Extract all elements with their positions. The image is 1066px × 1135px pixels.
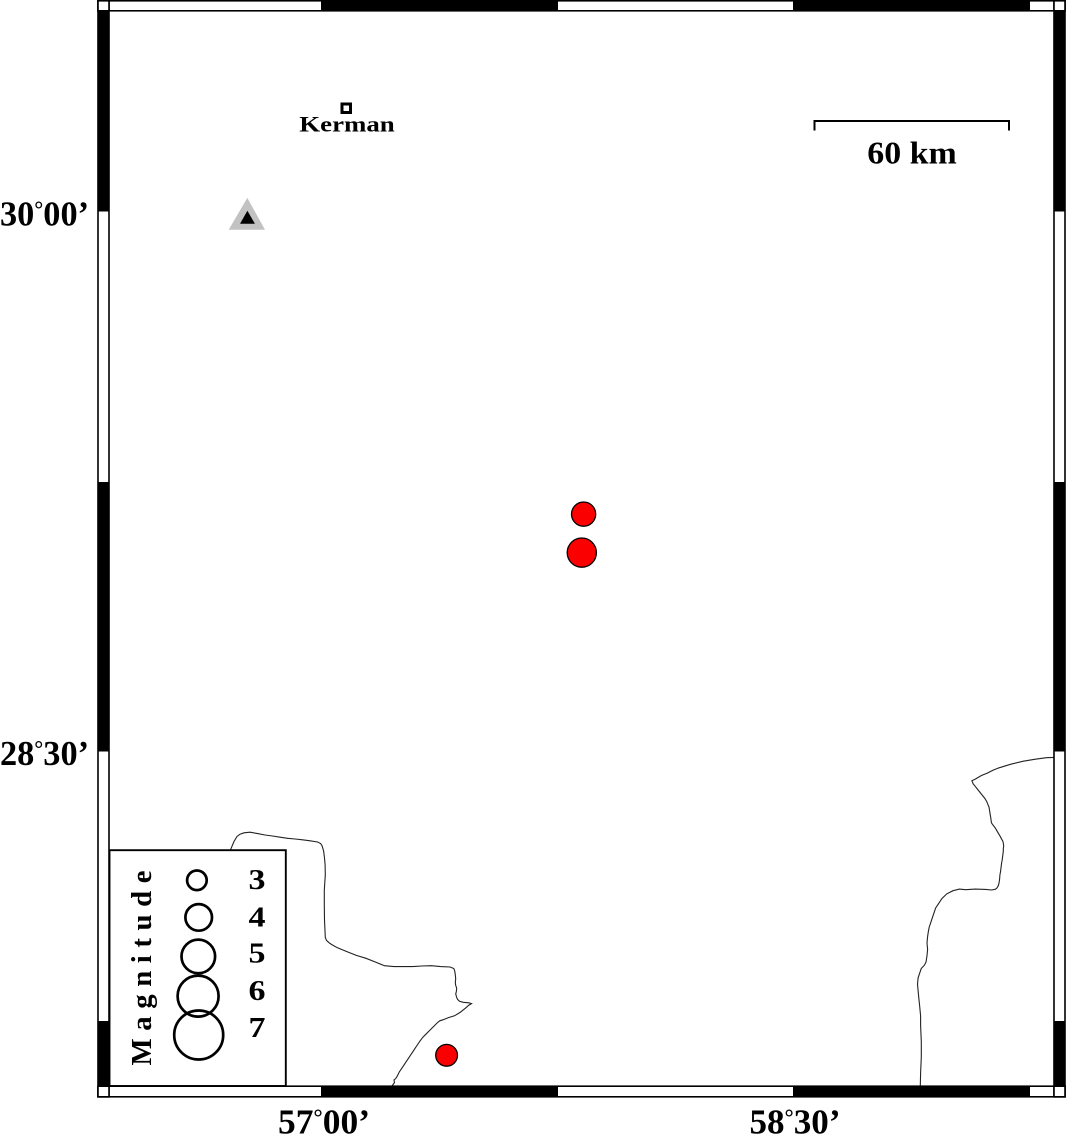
svg-text:57°00’: 57°00’: [278, 1103, 370, 1135]
svg-text:7: 7: [249, 1012, 266, 1044]
svg-text:Kerman: Kerman: [299, 112, 395, 137]
svg-text:5: 5: [249, 938, 266, 970]
svg-text:4: 4: [249, 902, 266, 934]
svg-text:60 km: 60 km: [867, 135, 957, 171]
svg-text:28°30’: 28°30’: [0, 734, 89, 773]
svg-text:6: 6: [249, 975, 266, 1007]
svg-text:30°00’: 30°00’: [0, 195, 89, 234]
svg-text:3: 3: [249, 864, 266, 896]
svg-text:58°30’: 58°30’: [750, 1103, 841, 1135]
